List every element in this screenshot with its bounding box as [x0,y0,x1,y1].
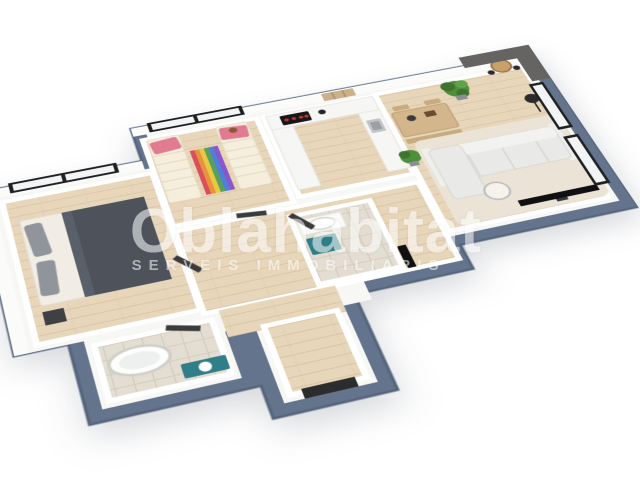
bathroom1-door-open [166,325,201,331]
floor-plan-svg [0,33,640,480]
floor-plan-image: Oblahabitat SERVEIS IMMOBILIARIS [0,0,640,480]
apartment-3d-scene [0,33,640,480]
